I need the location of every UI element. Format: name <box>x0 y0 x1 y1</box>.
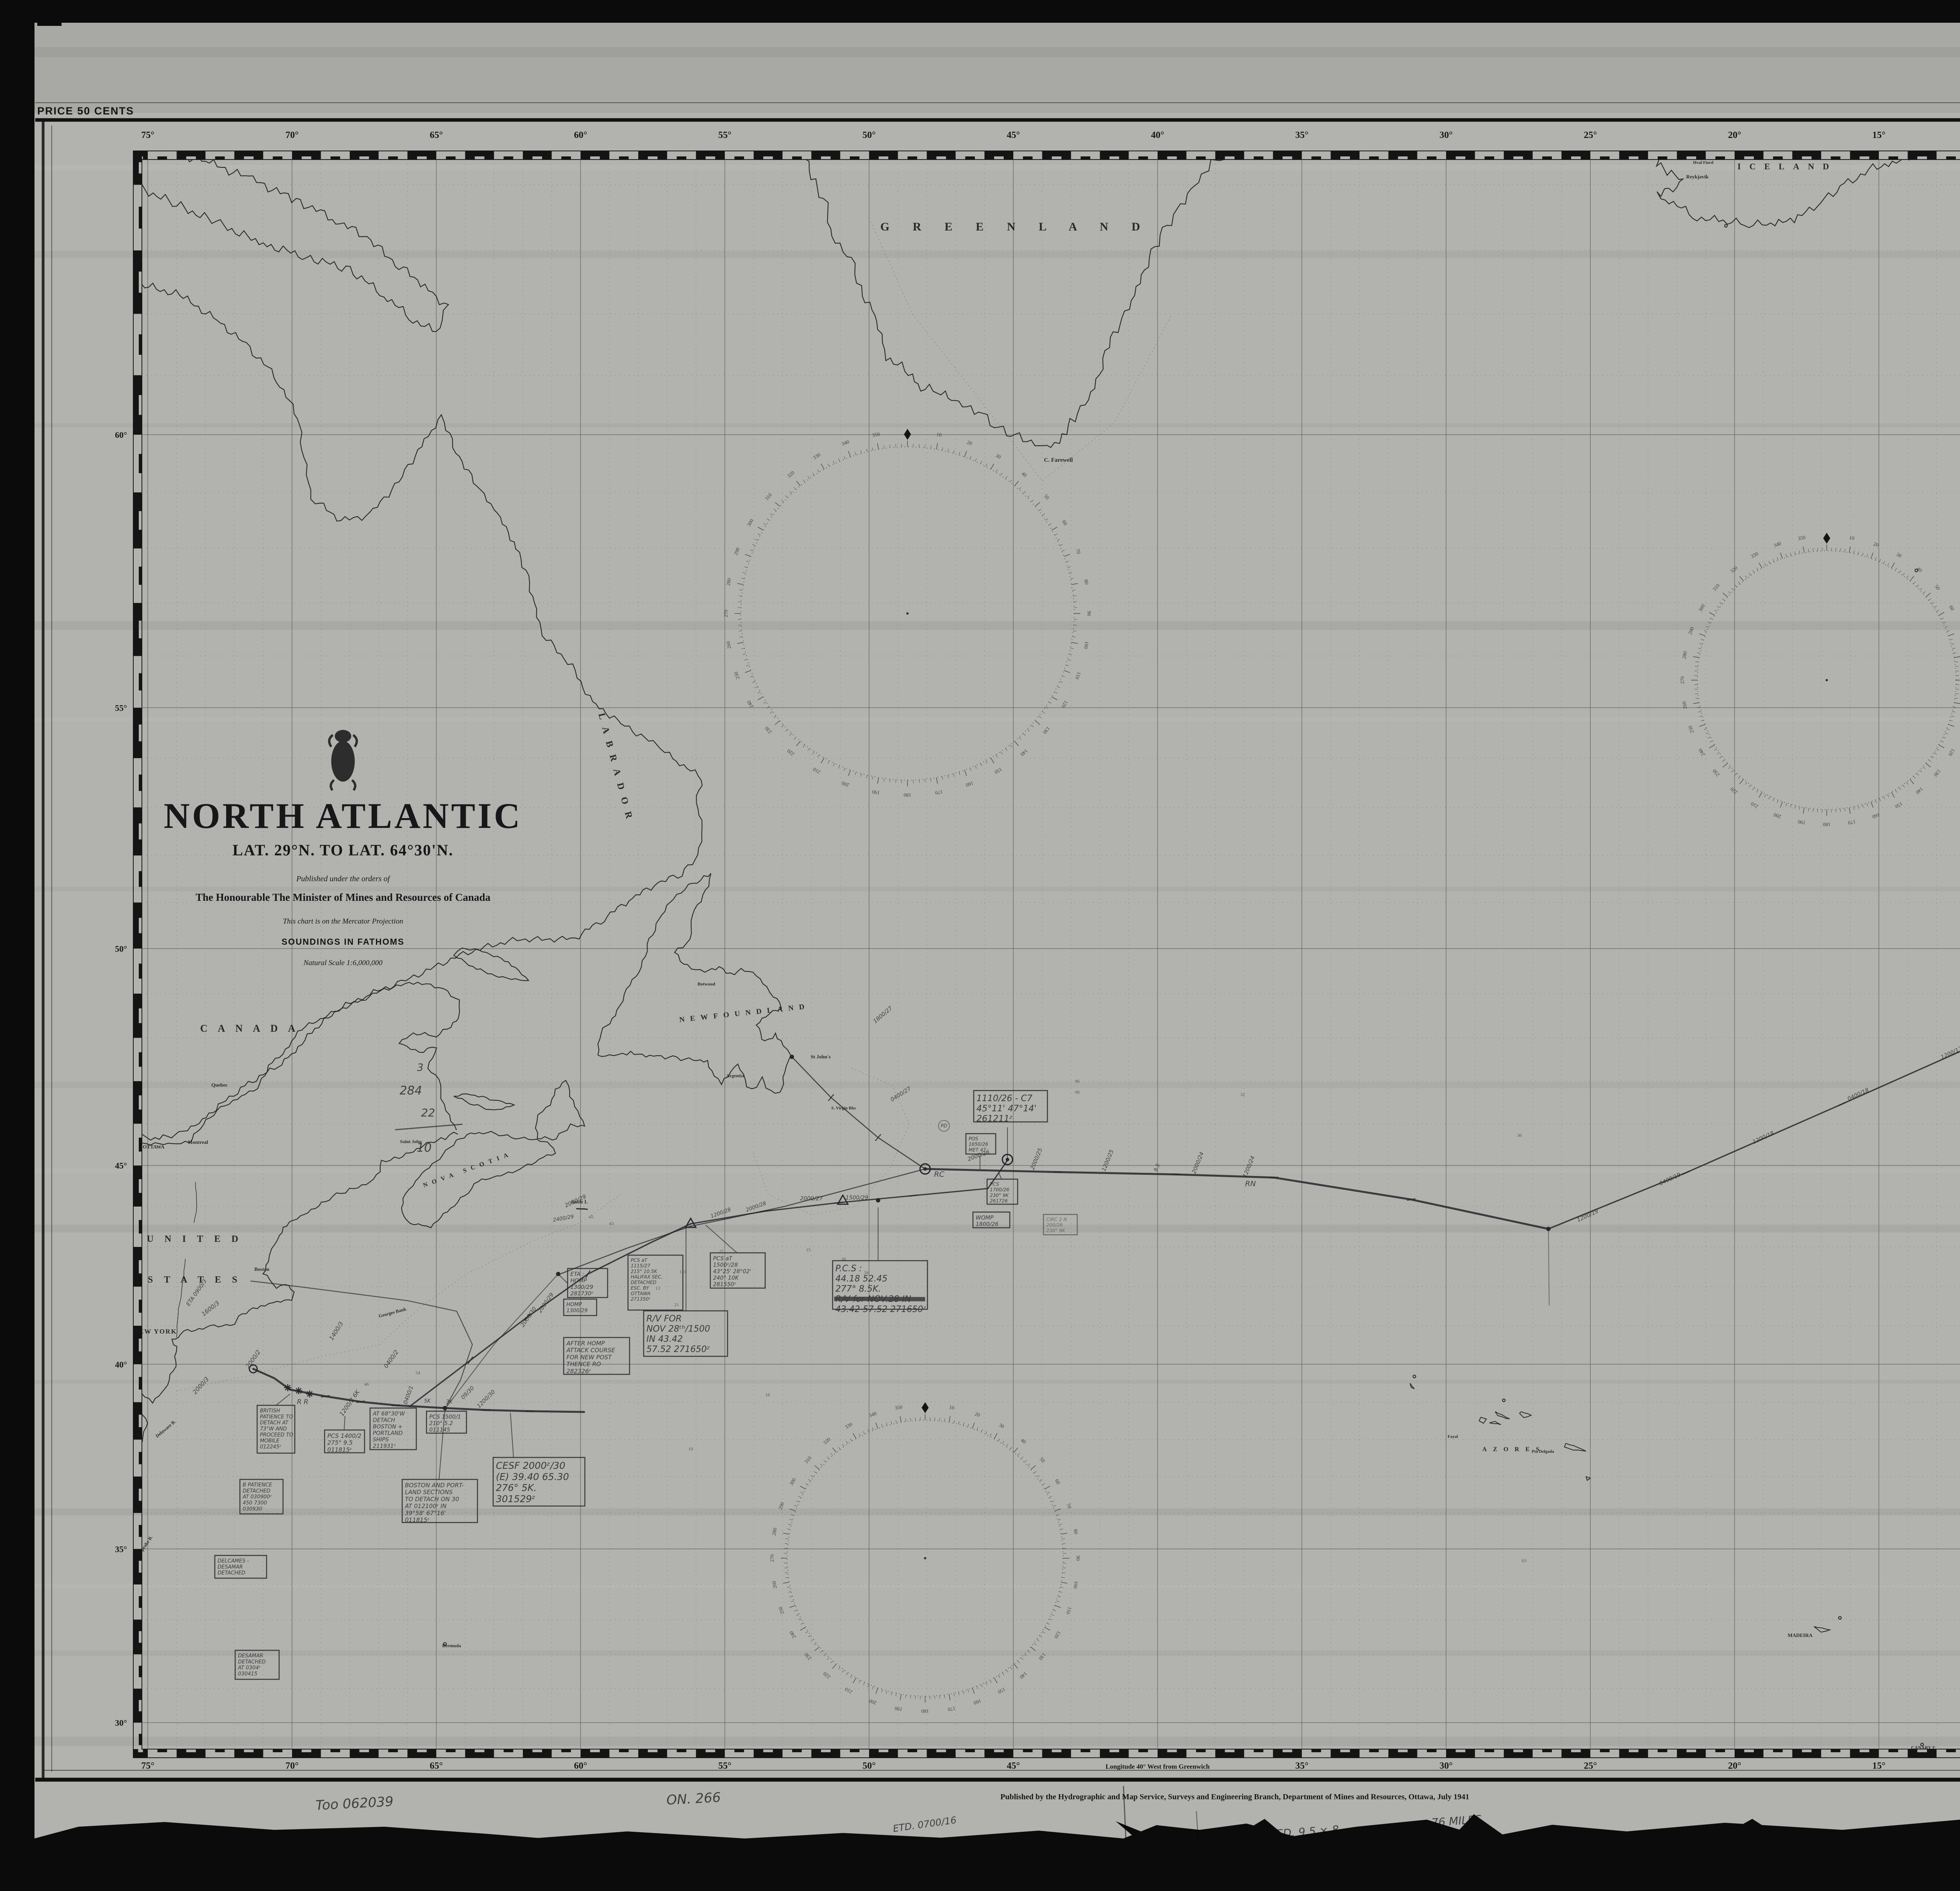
paper <box>34 23 1960 1839</box>
annotation-box-line: OTTAWA <box>631 1291 650 1296</box>
rose-degree-label: 10 <box>949 1404 955 1411</box>
left-latitude-label: 55° <box>115 703 127 713</box>
top-longitude-label: 55° <box>718 130 731 140</box>
annotation-box-line: PCS 1500/1 <box>429 1414 461 1420</box>
annotation-box-line: 281550ᶻ <box>713 1281 736 1288</box>
rose-degree-label: 180 <box>904 792 911 798</box>
map-label-bermuda: Bermuda <box>442 1643 461 1648</box>
annotation-box-line: DELCAMES - <box>218 1558 249 1564</box>
map-label-new_york: NEW YORK <box>134 1328 177 1335</box>
scale-line: Natural Scale 1:6,000,000 <box>303 959 383 967</box>
top-longitude-label: 20° <box>1728 130 1741 140</box>
annotation-box-line: WOMP <box>976 1215 994 1221</box>
annotation-box-line: TO DETACH ON 30 <box>405 1495 459 1503</box>
annotation-box-line: LAND SECTIONS <box>405 1489 453 1496</box>
handwritten-note: RC <box>934 1170 945 1179</box>
annotation-box-line: PCS <box>990 1181 999 1187</box>
scanned-chart-page: 0102030405060708090100110120130140150160… <box>0 0 1960 1891</box>
order-line: Published under the orders of <box>296 875 391 883</box>
map-label-quebec: Quebec <box>211 1082 228 1088</box>
annotation-box-line: MOBILE <box>260 1438 279 1444</box>
top-longitude-label: 35° <box>1295 130 1308 140</box>
top-longitude-label: 25° <box>1584 130 1597 140</box>
annotation-box-line: R/V FOR <box>646 1314 682 1324</box>
annotation-box-line: DESAMAR <box>218 1564 243 1570</box>
annotation-box-line: 261211ᶻ <box>976 1114 1013 1124</box>
annotation-box-line: HALIFAX SEC. <box>631 1274 662 1279</box>
sounding-value: 54 <box>416 1370 420 1376</box>
annotation-box-line: 1115/27 <box>631 1263 650 1269</box>
annotation-box-line: B PATIENCE <box>243 1482 272 1488</box>
sounding-value: 98 <box>1075 1089 1080 1095</box>
bottom-longitude-label: 75° <box>141 1761 154 1771</box>
annotation-box-line: DETACHED <box>631 1280 656 1285</box>
annotation-box-line: 1300/29 <box>566 1308 588 1314</box>
left-latitude-label: 30° <box>115 1718 127 1728</box>
rose-degree-label: 80 <box>1083 579 1090 585</box>
annotation-box-line: 030930 <box>243 1506 262 1512</box>
north-atlantic-chart: 0102030405060708090100110120130140150160… <box>0 0 1960 1891</box>
annotation-box-line: HOMP <box>570 1278 587 1284</box>
chart-subtitle: LAT. 29°N. TO LAT. 64°30'N. <box>232 841 454 859</box>
map-label-iceland: ICELAND <box>1737 162 1837 171</box>
handwritten-note: 22 <box>421 1106 435 1119</box>
top-longitude-label: 40° <box>1151 130 1164 140</box>
annotation-box-line: 57.52 271650ᶻ <box>646 1345 710 1354</box>
top-longitude-label: 65° <box>430 130 443 140</box>
position-dot <box>1546 1227 1551 1231</box>
bottom-longitude-label: 35° <box>1295 1761 1308 1771</box>
annotation-box-line: CESF 2000ᶻ/30 <box>496 1460 565 1471</box>
top-longitude-label: 75° <box>141 130 154 140</box>
annotation-box-line: MET 47 <box>969 1147 986 1152</box>
annotation-box-line: 011815ᶻ <box>327 1446 352 1453</box>
annotation-box-line: 1800/26 <box>976 1221 998 1228</box>
bottom-longitude-label: 45° <box>1007 1761 1020 1771</box>
top-longitude-label: 60° <box>574 130 587 140</box>
annotation-box-line: DETACH <box>373 1417 395 1424</box>
annotation-box-line: 230° 9K <box>990 1192 1009 1198</box>
handwritten-note: 284 <box>399 1084 422 1098</box>
rose-degree-label: 270 <box>723 610 729 617</box>
rose-degree-label: 180 <box>1823 822 1831 828</box>
bottom-longitude-label: 50° <box>862 1761 876 1771</box>
annotation-box-line: PORTLAND <box>373 1430 403 1437</box>
annotation-box-line: 281730ᶻ <box>570 1291 593 1297</box>
film-notch <box>37 8 62 26</box>
annotation-box-line: 011145 <box>429 1427 450 1433</box>
map-label-canada: CANADA <box>200 1023 306 1034</box>
map-label-canary: CANARY Iˢ <box>1911 1745 1935 1750</box>
top-longitude-label: 30° <box>1439 130 1453 140</box>
annotation-box-line: 43°25' 28°02' <box>713 1269 751 1275</box>
sounding-value: 46 <box>364 1381 369 1387</box>
position-dot <box>876 1198 880 1203</box>
annotation-box-line: HOMP <box>566 1302 582 1308</box>
annotation-box-line: AT 0304ᶻ <box>238 1665 261 1671</box>
sounding-value: 32 <box>1240 1092 1245 1097</box>
annotation-box-line: DETACH AT <box>260 1420 289 1426</box>
rose-degree-label: 10 <box>1849 535 1855 541</box>
annotation-box-line: 211931ᶻ <box>373 1443 396 1450</box>
position-dot <box>790 1055 794 1059</box>
top-longitude-label: 50° <box>862 130 876 140</box>
bottom-longitude-label: 70° <box>285 1761 299 1771</box>
left-latitude-label: 50° <box>115 944 127 954</box>
coastline <box>576 1209 588 1209</box>
sounding-value: 15 <box>806 1247 811 1252</box>
annotation-box-line: 012245ᶻ <box>260 1444 281 1450</box>
rose-degree-label: 270 <box>769 1554 775 1562</box>
sounding-value: 63 <box>1522 1558 1526 1563</box>
bottom-longitude-label: 25° <box>1584 1761 1597 1771</box>
sounding-value: 96 <box>1075 1078 1080 1084</box>
annotation-box-line: DETACHED <box>243 1488 270 1494</box>
annotation-box-line: PCS aT <box>631 1258 648 1263</box>
map-label-greenland: G R E E N L A N D <box>880 220 1151 233</box>
annotation-box-line: 030415 <box>238 1671 258 1677</box>
map-label-ottawa: OTTAWA <box>143 1144 165 1150</box>
bottom-longitude-label: 20° <box>1728 1761 1741 1771</box>
bottom-center-longitude-label: Longitude 40° West from Greenwich <box>1105 1763 1210 1770</box>
annotation-box-line: PCS aT <box>713 1256 733 1262</box>
left-latitude-label: 45° <box>115 1161 127 1171</box>
annotation-box-line: 275° 9.5 <box>327 1439 353 1446</box>
annotation-box-line: THENCE RO <box>566 1361 601 1368</box>
top-longitude-label: 45° <box>1007 130 1020 140</box>
map-label-fayal: Fayal <box>1448 1434 1458 1439</box>
annotation-box-line: DETACHED <box>218 1570 245 1576</box>
map-label-united: UNITED <box>147 1234 249 1244</box>
annotation-box-line: 39°58' 67°16' <box>405 1510 446 1517</box>
annotation-box-line: 1500ᶻ/28 <box>713 1262 738 1269</box>
rose-degree-label: 10 <box>936 431 942 438</box>
handwritten-note: RN <box>1245 1180 1256 1188</box>
rose-degree-label: 80 <box>1073 1528 1079 1534</box>
sounding-value: 19 <box>688 1446 693 1452</box>
chart-title: NORTH ATLANTIC <box>164 796 523 836</box>
position-dot <box>924 1167 927 1171</box>
rose-degree-label: 90 <box>1075 1556 1081 1561</box>
minister-line: The Honourable The Minister of Mines and… <box>196 891 491 903</box>
rose-degree-label: 90 <box>1086 611 1092 616</box>
map-label-botwood: Botwood <box>697 981 715 987</box>
annotation-box-line: 44.18 52.45 <box>835 1274 887 1284</box>
bottom-longitude-label: 60° <box>574 1761 587 1771</box>
annotation-box-line: 450 7300 <box>243 1500 267 1506</box>
annotation-box-line: BOSTON + <box>373 1424 403 1430</box>
annotation-box-line: 73°W AND <box>260 1426 287 1432</box>
annotation-box-line: ETA : <box>570 1271 584 1278</box>
bottom-longitude-label: 65° <box>430 1761 443 1771</box>
annotation-box-line: DESAMAR <box>238 1653 263 1659</box>
annotation-box-line: 282326ᶻ <box>566 1368 591 1375</box>
annotation-box-line: PROCEED TO <box>260 1432 293 1438</box>
sounding-value: 45 <box>589 1214 593 1220</box>
annotation-box-line: PCS 1400/2 <box>327 1432 361 1439</box>
annotation-box-line: POS <box>969 1136 978 1141</box>
map-label-c_farewell: C. Farewell <box>1044 457 1073 463</box>
projection-line: This chart is on the Mercator Projection <box>283 917 403 926</box>
annotation-box-line: 230° 9K <box>1046 1228 1065 1233</box>
annotation-box-line: AT 030900ᶻ <box>242 1494 272 1500</box>
sounding-value: 43 <box>609 1221 614 1226</box>
publisher-line: Published by the Hydrographic and Map Se… <box>1000 1793 1469 1801</box>
annotation-box-line: 277° 8.5K. <box>835 1284 881 1294</box>
map-label-st_johns: St John's <box>811 1054 831 1060</box>
annotation-box-line: 1650/26 <box>969 1141 988 1147</box>
annotation-box-line: AT 012100ᶻ IN <box>405 1503 446 1510</box>
track-tick <box>1172 1174 1180 1175</box>
map-label-states: STATES <box>148 1275 249 1285</box>
annotation-box-line: IN 43.42 <box>646 1334 683 1344</box>
annotation-box-line: AFTER HOMP <box>566 1340 605 1347</box>
rose-degree-label: 180 <box>921 1708 929 1714</box>
map-label-boston: Boston <box>254 1266 270 1272</box>
annotation-box-line: 271350ᶻ <box>631 1296 650 1302</box>
handwritten-note: 1500/29 <box>846 1195 868 1201</box>
top-longitude-label: 15° <box>1872 130 1886 140</box>
map-label-montreal: Montreal <box>188 1139 208 1145</box>
handwritten-note: 3 <box>417 1062 424 1074</box>
annotation-box-line: BRITISH <box>260 1408 280 1414</box>
bottom-longitude-label: 15° <box>1872 1761 1886 1771</box>
annotation-box-line: 1300/29 <box>570 1284 593 1290</box>
annotation-box-line: BOSTON AND PORT- <box>405 1482 464 1489</box>
annotation-box-line: P.C.S : <box>835 1264 862 1274</box>
handwritten-note: 2000/27 <box>800 1196 823 1202</box>
rose-degree-label: 270 <box>1679 676 1685 684</box>
annotation-box-line: 200/26 <box>1046 1222 1063 1228</box>
sounding-value: 18 <box>765 1392 770 1397</box>
annotation-box-line: 276° 5K. <box>496 1483 537 1494</box>
annotation-box-line: SHIPS <box>373 1437 389 1443</box>
annotation-box-line: 301529ᶻ <box>496 1494 535 1504</box>
annotation-box-line: CIRC 2 N <box>1046 1217 1067 1222</box>
left-latitude-label: 60° <box>115 430 127 440</box>
annotation-box-line: AT 68°30'W <box>372 1411 405 1417</box>
annotation-box-line: FOR NEW POST <box>566 1354 612 1361</box>
track-tick <box>1054 1172 1063 1172</box>
handwritten-note: R R <box>297 1398 308 1406</box>
left-latitude-label: 35° <box>115 1544 127 1554</box>
annotation-box-line: 215° 10.5K <box>631 1269 657 1274</box>
map-label-madeira: MADEIRA <box>1788 1632 1813 1638</box>
annotation-box-line: ATTACK COURSE <box>566 1347 615 1354</box>
annotation-box-line: NOV 28ᵗʰ/1500 <box>646 1324 710 1334</box>
annotation-box-line: DETACHED <box>238 1659 266 1665</box>
map-label-hval_fiord: Hval Fiord <box>1693 160 1713 165</box>
map-label-reykjavik: Reykjavik <box>1686 174 1709 180</box>
handwritten-note: 5K <box>424 1398 431 1404</box>
annotation-box-line: 1110/26 - C7 <box>976 1094 1033 1103</box>
annotation-box-line: PATIENCE TO <box>260 1414 293 1420</box>
map-label-argentia: Argentia <box>726 1073 744 1078</box>
bottom-longitude-label: 55° <box>718 1761 731 1771</box>
annotation-box-line: ESC. BY <box>631 1285 650 1291</box>
left-latitude-label: 40° <box>115 1359 127 1369</box>
price-label: PRICE 50 CENTS <box>37 105 134 117</box>
handwritten-note: 3K <box>446 1399 453 1405</box>
annotation-box-line: 45°11' 47°14' <box>976 1104 1036 1114</box>
annotation-box-line: 011815ᶻ <box>405 1517 430 1524</box>
top-longitude-label: 70° <box>285 130 299 140</box>
annotation-box-line: 210° 5.2 <box>429 1421 453 1427</box>
annotation-box-line: 240° 10K <box>713 1275 739 1281</box>
annotation-box-line: 43.42 57.52 271650ᶻ <box>835 1305 926 1314</box>
handwritten-note: 10 <box>417 1141 432 1155</box>
sounding-value: 21 <box>674 1302 679 1307</box>
annotation-box-line: 1700/26 <box>990 1187 1009 1192</box>
handwritten-note: ON. 266 <box>666 1789 721 1808</box>
map-label-pta_delgada: Pta Delgada <box>1532 1449 1554 1454</box>
annotation-box-line: (E) 39.40 65.30 <box>496 1471 569 1482</box>
handwritten-note: PD <box>941 1123 947 1129</box>
annotation-box-line: 261726 <box>990 1198 1008 1203</box>
sounding-value: 13 <box>655 1285 660 1291</box>
sounding-value: 36 <box>1517 1132 1522 1138</box>
bottom-longitude-label: 30° <box>1439 1761 1453 1771</box>
soundings-line: SOUNDINGS IN FATHOMS <box>281 937 404 947</box>
